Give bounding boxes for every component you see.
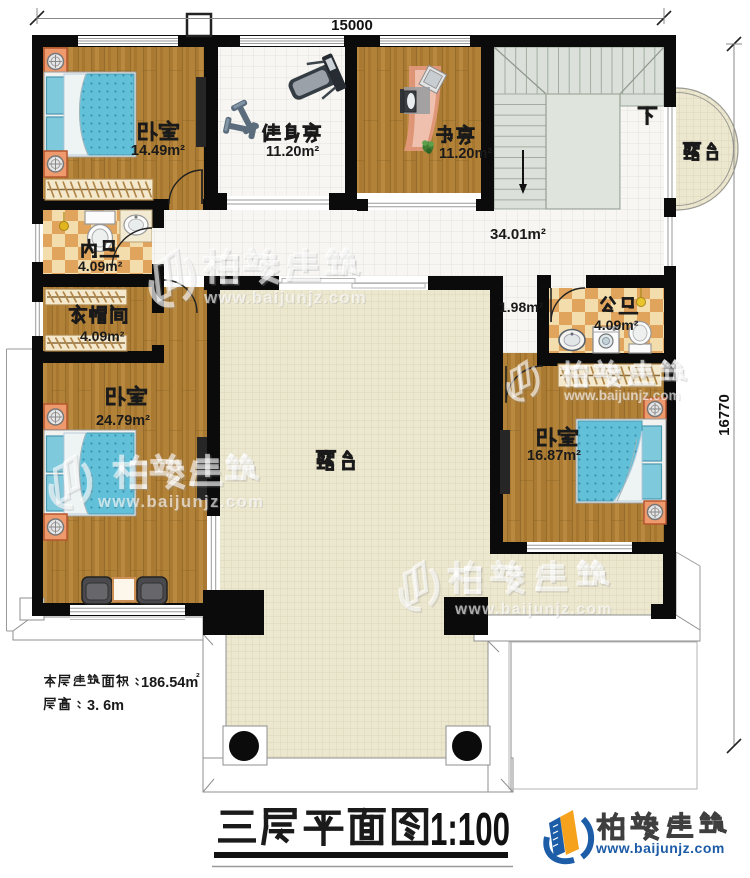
svg-text:www.baijunjz.com: www.baijunjz.com [203, 288, 367, 307]
svg-text:1:100: 1:100 [430, 804, 510, 855]
svg-text:4.09m²: 4.09m² [80, 328, 125, 344]
svg-text:1.98m²: 1.98m² [499, 299, 544, 315]
svg-text:3. 6m: 3. 6m [87, 698, 124, 714]
svg-text:4.09m²: 4.09m² [594, 317, 639, 333]
svg-text:24.79m²: 24.79m² [96, 413, 150, 429]
svg-text:16.87m²: 16.87m² [527, 448, 581, 464]
svg-text:www.baijunjz.com: www.baijunjz.com [563, 388, 681, 403]
svg-text:15000: 15000 [331, 17, 373, 34]
svg-text:www.baijunjz.com: www.baijunjz.com [595, 840, 725, 856]
svg-text:4.09m²: 4.09m² [78, 258, 123, 274]
svg-text:www.baijunjz.com: www.baijunjz.com [454, 601, 613, 618]
svg-text:34.01m²: 34.01m² [490, 226, 546, 243]
svg-text:²: ² [196, 672, 200, 684]
svg-text:16770: 16770 [716, 394, 733, 436]
svg-text:11.20m²: 11.20m² [266, 144, 319, 160]
svg-text:www.baijunjz.com: www.baijunjz.com [97, 493, 264, 511]
svg-text:11.20m²: 11.20m² [439, 146, 492, 162]
svg-text:186.54m: 186.54m [141, 675, 198, 691]
svg-text:14.49m²: 14.49m² [131, 143, 185, 159]
